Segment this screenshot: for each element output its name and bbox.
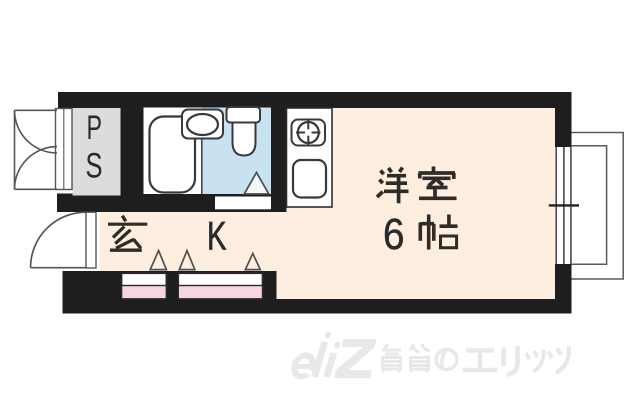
svg-text:K: K	[207, 214, 227, 258]
svg-text:6: 6	[383, 210, 405, 259]
svg-text:S: S	[86, 146, 103, 186]
svg-text:P: P	[87, 109, 103, 147]
